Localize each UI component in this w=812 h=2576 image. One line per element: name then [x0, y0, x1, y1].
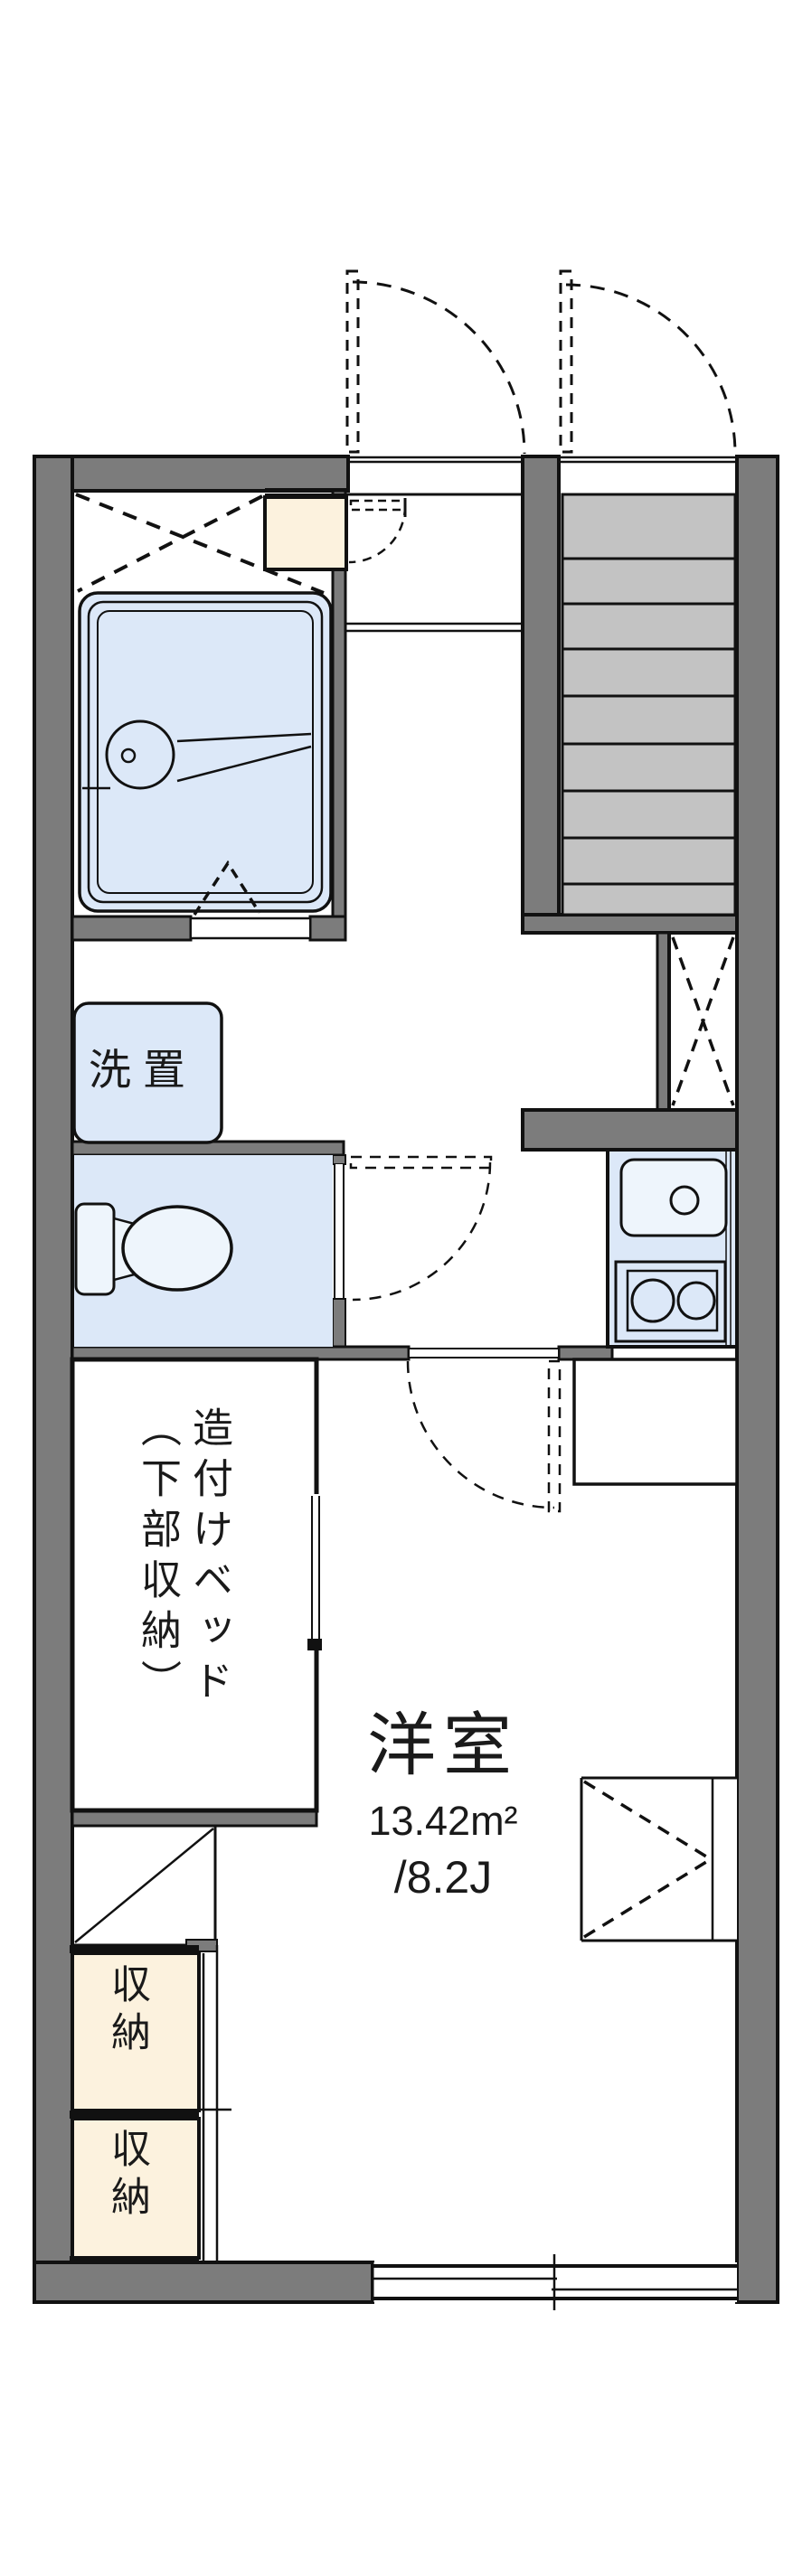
refrigerator-space	[574, 1359, 737, 1484]
closet-bottom-border	[70, 2256, 199, 2264]
stair-tread	[562, 838, 735, 884]
bathroom-bottom-wall-right	[310, 917, 345, 940]
cabinet-door-leaf	[351, 501, 405, 510]
stair-tread	[562, 696, 735, 744]
outer-wall-left	[34, 456, 72, 2302]
stair-tread	[562, 791, 735, 838]
toilet-doorframe-upper-stub	[333, 1155, 345, 1164]
washing-machine-label: 洗置	[89, 1048, 197, 1091]
room-door-leaf	[549, 1361, 560, 1511]
stair-tread	[562, 744, 735, 791]
toilet-bowl	[123, 1207, 231, 1290]
closet-upper-label: 収納	[106, 1963, 147, 2059]
staircase	[562, 494, 735, 915]
understair-shaft	[669, 933, 737, 1110]
room-name-label: 洋室	[307, 1712, 579, 1781]
toilet-doorframe-lower-stub	[333, 1299, 345, 1347]
cabinet-box	[265, 497, 346, 569]
stair-tread	[562, 649, 735, 696]
entrance-door-leaf	[347, 271, 358, 452]
toilet-tank	[76, 1204, 114, 1294]
built-in-bed-label-line1: 造付けベッド	[186, 1406, 232, 1710]
floor-plan: 洗置 造付けベッド（下部収納） 収納 収納 洋室 13.42m² /8.2J	[0, 0, 812, 2576]
wall-counter-box	[581, 1778, 737, 1941]
bottom-window	[373, 2254, 737, 2310]
entrance-door-leaf	[561, 271, 571, 452]
kitchen	[608, 1150, 737, 1347]
built-in-bed-label: 造付けベッド（下部収納）	[132, 1406, 235, 1750]
bathroom-door-opening	[192, 918, 309, 938]
kitchen-top-wall	[523, 1110, 737, 1150]
bathroom-bottom-wall-left	[72, 917, 191, 940]
room-area-tatami-label: /8.2J	[307, 1855, 579, 1900]
bed-side-hinge-tick	[307, 1639, 322, 1650]
understair-wall	[523, 915, 737, 933]
room-area-sqm-label: 13.42m²	[307, 1800, 579, 1841]
stair-tread	[562, 494, 735, 559]
roomdoor-wall-right-segment	[559, 1347, 612, 1359]
outer-wall-bottom	[34, 2262, 373, 2302]
stove-burner	[632, 1280, 674, 1321]
stair-tread	[562, 884, 735, 915]
room-door-opening	[410, 1349, 558, 1358]
outer-wall-right	[737, 456, 778, 2302]
stair-tread	[562, 604, 735, 649]
stove-burner	[678, 1283, 714, 1319]
built-in-bed-label-line2: （下部収納）	[135, 1406, 181, 1710]
outer-wall-top-left	[34, 456, 348, 491]
entry-pillar-wall	[523, 456, 559, 933]
bathtub-drain	[122, 749, 135, 762]
bed-bottom-wall	[72, 1810, 316, 1826]
toilet-door-leaf	[351, 1157, 491, 1168]
stair-tread	[562, 559, 735, 604]
closet-lower-label: 収納	[106, 2128, 147, 2223]
bathtub-seat-circle	[107, 721, 174, 788]
kitchen-faucet	[671, 1187, 698, 1214]
